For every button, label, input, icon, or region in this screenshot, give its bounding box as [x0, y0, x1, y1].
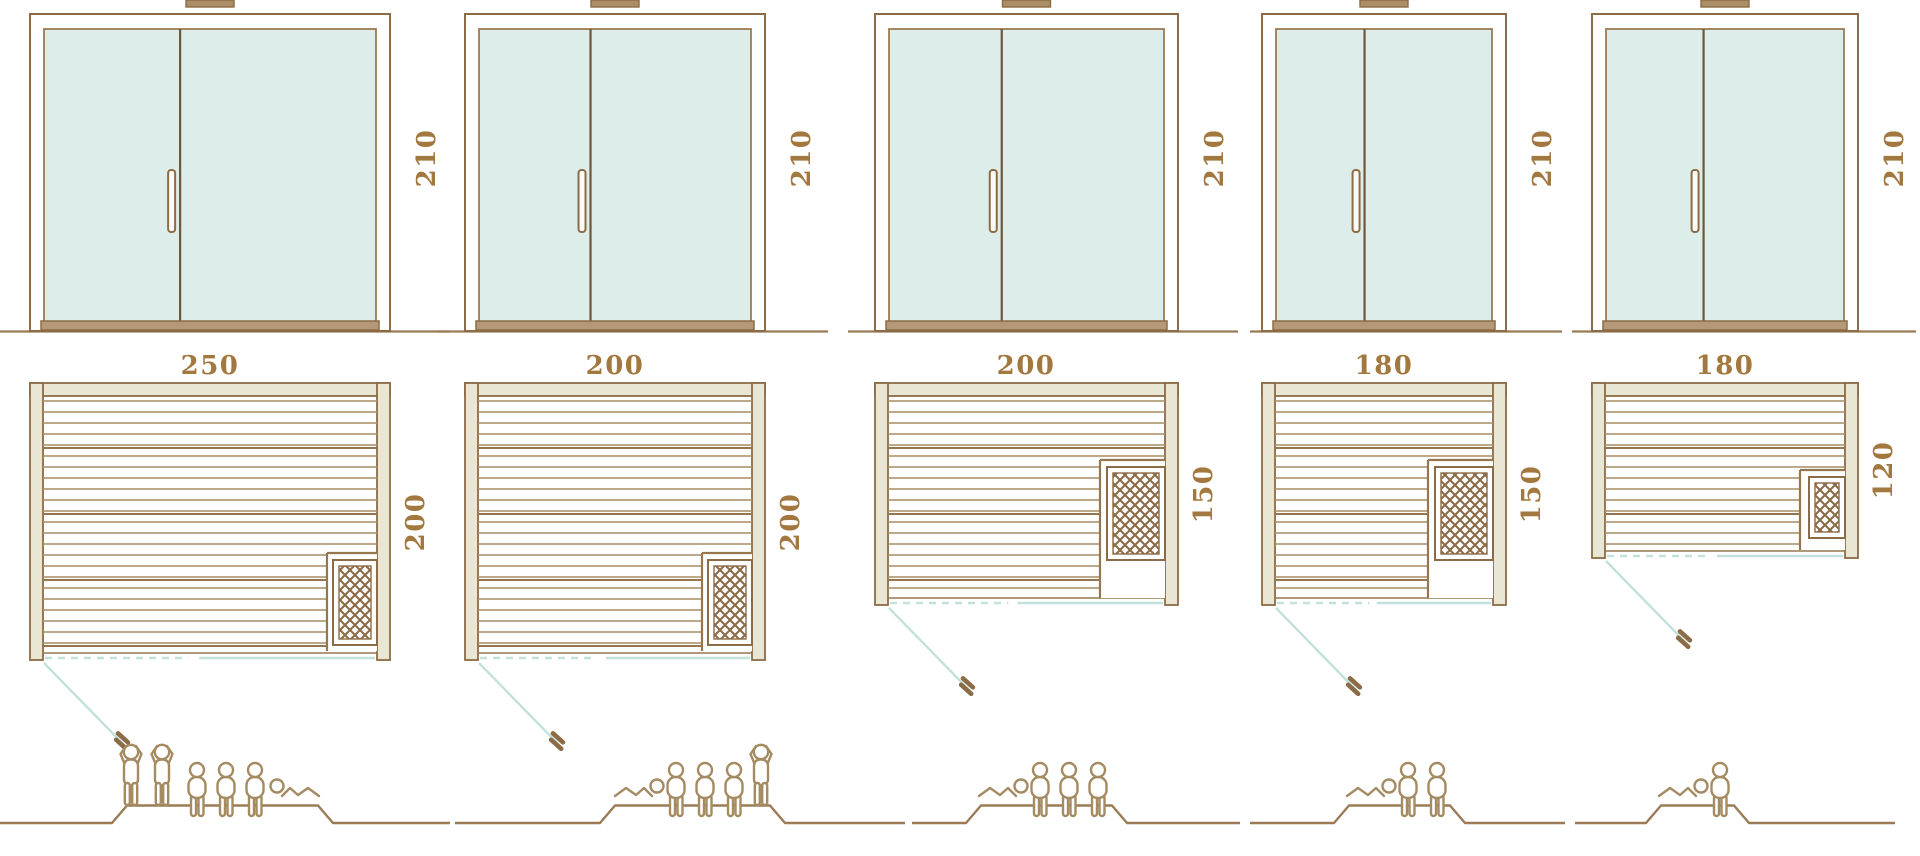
- plan-wall-right: [752, 383, 765, 660]
- floor-plan: 180: [1262, 351, 1506, 697]
- model-column-180x150: 210180 150: [1250, 0, 1565, 823]
- sitting-person-icon: [1090, 763, 1107, 816]
- height-dimension-label: 210: [787, 129, 817, 188]
- glass-front-and-door: [479, 658, 750, 752]
- depth-dimension-label: 200: [401, 493, 431, 552]
- capacity-figures: [0, 745, 450, 823]
- depth-dimension-label: 120: [1869, 441, 1899, 500]
- capacity-figures: [1575, 763, 1895, 823]
- door-handle-icon: [1692, 170, 1699, 232]
- width-dimension-label: 200: [997, 351, 1056, 381]
- door-elevation: 210: [848, 0, 1238, 332]
- glass-panels: [1276, 29, 1492, 322]
- lying-person-icon: [979, 780, 1028, 797]
- diagram-svg: 210250 200210200 200210200 150210180: [0, 0, 1920, 856]
- glass-panels: [479, 29, 751, 322]
- sitting-person-icon: [1712, 763, 1729, 816]
- width-dimension-label: 180: [1696, 351, 1755, 381]
- height-dimension-label: 210: [1528, 129, 1558, 188]
- sauna-size-diagram: 210250 200210200 200210200 150210180: [0, 0, 1920, 856]
- glass-panels: [889, 29, 1164, 322]
- model-column-200x200: 210200 200: [437, 0, 905, 823]
- heater-grid-icon: [339, 566, 371, 639]
- sitting-person-icon: [189, 763, 206, 816]
- door-swing-line: [889, 608, 973, 694]
- plan-wall-top: [1592, 383, 1858, 396]
- glass-panels: [1606, 29, 1844, 322]
- lying-person-icon: [1347, 780, 1396, 797]
- door-handle-icon: [1353, 170, 1360, 232]
- heater: [1800, 470, 1845, 550]
- depth-dimension-label: 200: [776, 493, 806, 552]
- door-handle-icon: [579, 170, 586, 232]
- door-handle-icon: [168, 170, 175, 232]
- door-swing-line: [1276, 608, 1360, 694]
- lying-person-icon: [271, 780, 320, 797]
- model-column-180x120: 210180 120: [1572, 0, 1916, 823]
- width-dimension-label: 200: [586, 351, 645, 381]
- roof-vent-icon: [1003, 0, 1051, 7]
- roof-vent-icon: [1360, 0, 1408, 7]
- door-elevation: 210: [437, 0, 828, 332]
- heater-grid-icon: [1113, 473, 1159, 554]
- standing-person-icon: [751, 745, 772, 805]
- height-dimension-label: 210: [1880, 129, 1910, 188]
- glass-front-and-door: [44, 658, 375, 752]
- lying-person-icon: [1659, 780, 1708, 797]
- capacity-figures: [455, 745, 905, 823]
- door-sill: [476, 321, 754, 330]
- heater: [702, 553, 752, 651]
- heater-grid-icon: [1815, 483, 1839, 532]
- sitting-person-icon: [668, 763, 685, 816]
- door-swing-line: [1606, 561, 1690, 647]
- bench-platform-line: [1575, 806, 1895, 824]
- model-column-250x200: 210250 200: [0, 0, 450, 823]
- depth-dimension-label: 150: [1517, 465, 1547, 524]
- floor-plan: 200: [465, 351, 765, 752]
- plan-wall-left: [30, 383, 43, 660]
- plan-wall-top: [875, 383, 1178, 396]
- door-elevation: 210: [1250, 0, 1562, 332]
- door-sill: [886, 321, 1167, 330]
- plan-wall-left: [875, 383, 888, 605]
- heater: [327, 553, 377, 651]
- plan-wall-left: [465, 383, 478, 660]
- sitting-person-icon: [726, 763, 743, 816]
- glass-panels: [44, 29, 376, 322]
- floor-plan: 200: [875, 351, 1178, 697]
- glass-front-and-door: [889, 603, 1163, 697]
- door-handle-icon: [990, 170, 997, 232]
- door-elevation: 210: [0, 0, 450, 332]
- heater: [1100, 460, 1165, 598]
- floor-plan: 180: [1592, 351, 1858, 650]
- plan-wall-top: [1262, 383, 1506, 396]
- door-swing-line: [479, 663, 563, 749]
- plan-wall-right: [1493, 383, 1506, 605]
- sitting-person-icon: [1400, 763, 1417, 816]
- door-sill: [1273, 321, 1495, 330]
- plan-wall-right: [377, 383, 390, 660]
- capacity-figures: [1250, 763, 1565, 823]
- depth-dimension-label: 150: [1189, 465, 1219, 524]
- sitting-person-icon: [1061, 763, 1078, 816]
- plan-wall-right: [1845, 383, 1858, 558]
- sitting-person-icon: [218, 763, 235, 816]
- heater-grid-icon: [714, 566, 746, 639]
- heater: [1428, 460, 1493, 598]
- heater-grid-icon: [1441, 473, 1487, 554]
- sitting-person-icon: [697, 763, 714, 816]
- door-sill: [1603, 321, 1847, 330]
- plan-wall-right: [1165, 383, 1178, 605]
- glass-front-and-door: [1606, 556, 1843, 650]
- model-column-200x150: 210200 150: [848, 0, 1240, 823]
- width-dimension-label: 250: [181, 351, 240, 381]
- capacity-figures: [912, 763, 1240, 823]
- door-sill: [41, 321, 379, 330]
- glass-front-and-door: [1276, 603, 1491, 697]
- roof-vent-icon: [186, 0, 234, 7]
- sitting-person-icon: [1032, 763, 1049, 816]
- height-dimension-label: 210: [1200, 129, 1230, 188]
- floor-plan: 250: [30, 351, 390, 752]
- plan-wall-top: [30, 383, 390, 396]
- plan-wall-left: [1262, 383, 1275, 605]
- plan-wall-top: [465, 383, 765, 396]
- door-swing-line: [44, 663, 128, 749]
- standing-person-icon: [121, 745, 142, 805]
- sitting-person-icon: [247, 763, 264, 816]
- sitting-person-icon: [1429, 763, 1446, 816]
- height-dimension-label: 210: [412, 129, 442, 188]
- lying-person-icon: [615, 780, 664, 797]
- width-dimension-label: 180: [1355, 351, 1414, 381]
- roof-vent-icon: [591, 0, 639, 7]
- plan-wall-left: [1592, 383, 1605, 558]
- roof-vent-icon: [1701, 0, 1749, 7]
- standing-person-icon: [152, 745, 173, 805]
- door-elevation: 210: [1572, 0, 1916, 332]
